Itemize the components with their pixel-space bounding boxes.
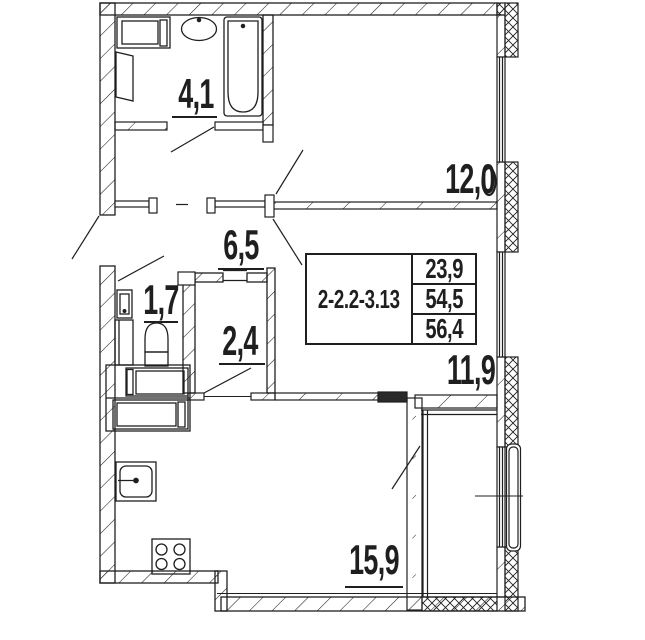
door-jamb (149, 198, 157, 213)
pantry-bottom-wall-right (251, 393, 275, 400)
bath-sink-icon (182, 18, 217, 41)
door-jamb (265, 195, 274, 217)
unit-area-middle: 54,5 (411, 283, 475, 315)
room11-door-leaf (273, 219, 302, 265)
wall-pier (505, 162, 518, 252)
area-label-hallway: 6,5 (223, 221, 258, 269)
pantry-door-leaf (204, 368, 251, 393)
unit-area-top: 23,9 (411, 255, 475, 283)
bathroom-bottom-wall-left (115, 122, 167, 130)
wc-right-wall (183, 282, 195, 393)
entrance-door-leaf (72, 216, 99, 259)
stove-icon (152, 539, 190, 574)
wc-sink-icon (117, 290, 132, 318)
room11-kitchen-wall (275, 393, 380, 400)
wall-pier (505, 3, 518, 57)
window-room11 (497, 252, 505, 357)
wall-pier (505, 547, 518, 611)
label-underline (218, 268, 264, 270)
kitchen-wall-dark-segment (378, 392, 407, 402)
corridor-divider-right (215, 201, 265, 207)
balcony-partition-wall (407, 398, 422, 610)
label-underline (345, 586, 403, 588)
door-jamb (178, 272, 195, 285)
pantry-right-wall (267, 268, 275, 393)
top-wall (100, 3, 497, 15)
label-underline (144, 321, 178, 323)
kitchen-sink-icon (116, 462, 156, 501)
unit-area-bottom: 56,4 (411, 315, 475, 343)
corridor-divider-left (115, 201, 149, 207)
label-underline (172, 116, 217, 118)
counter-appliances-icon (106, 365, 190, 431)
wall-pier (505, 357, 518, 447)
washing-machine-icon (117, 17, 170, 48)
door-jamb (207, 198, 215, 213)
bathtub-icon (224, 17, 262, 116)
kitchen-fixtures (116, 462, 190, 574)
left-wall-upper (100, 3, 115, 215)
bathroom-door-leaf (171, 127, 214, 152)
bathroom-cabinet-icon (116, 52, 133, 101)
bottom-wall-left (100, 571, 218, 583)
area-label-wc: 1,7 (143, 276, 178, 324)
balcony-south-wall (422, 597, 497, 611)
wc-cabinet-icon (115, 320, 133, 365)
room12-door-leaf (276, 150, 303, 194)
area-label-kitchen-living: 15,9 (349, 536, 399, 584)
unit-code: 2-2.2-3.13 (307, 255, 411, 343)
interior-partitions (115, 122, 497, 610)
bathroom-right-wall (263, 15, 273, 125)
area-label-bedroom-top: 12,0 (445, 155, 495, 203)
pantry-top-wall-right (247, 273, 267, 282)
window-room12 (497, 57, 505, 162)
window-balcony (475, 444, 523, 551)
area-label-bedroom-right: 11,9 (447, 346, 495, 394)
floor-plan: 4,1 12,0 6,5 1,7 2,4 11,9 15,9 2-2.2-3.1… (0, 0, 645, 640)
door-jamb (263, 125, 273, 142)
bathroom-bottom-wall-right (215, 122, 263, 130)
toilet-icon (145, 323, 168, 366)
balcony-north-wall (415, 395, 497, 408)
room12-bottom-wall (273, 202, 497, 209)
label-underline (219, 363, 265, 365)
pantry-top-wall-left (195, 273, 223, 282)
area-label-bathroom: 4,1 (178, 70, 213, 118)
unit-info-box: 2-2.2-3.13 23,9 54,5 56,4 (305, 253, 477, 345)
area-label-pantry: 2,4 (222, 317, 257, 365)
